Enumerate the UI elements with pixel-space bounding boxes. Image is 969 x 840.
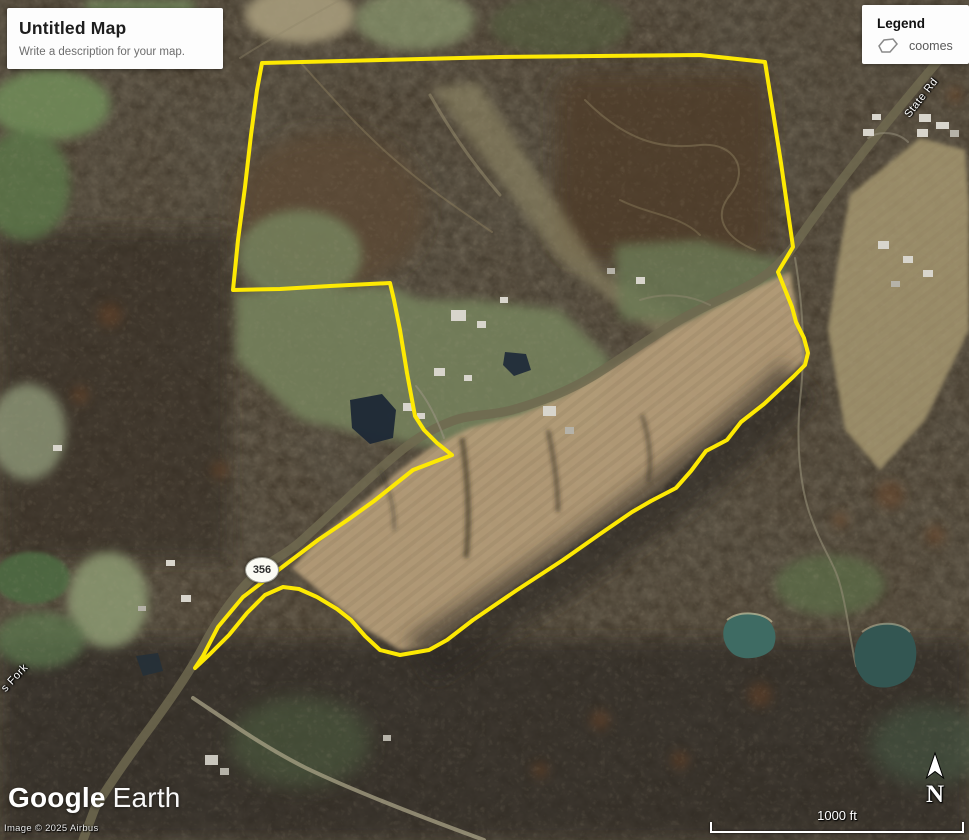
route-shield-356: 356: [245, 557, 279, 583]
earth-wordmark: Earth: [113, 782, 181, 813]
map-description: Write a description for your map.: [19, 46, 211, 58]
legend-item-coomes[interactable]: coomes: [877, 37, 969, 55]
terrain-patches: [0, 0, 969, 840]
imagery-copyright: Image © 2025 Airbus: [4, 823, 99, 834]
map-title: Untitled Map: [19, 18, 211, 39]
polygon-icon: [877, 37, 901, 55]
north-label: N: [919, 782, 951, 807]
google-wordmark: Google: [8, 782, 106, 813]
map-stage[interactable]: State Rd s Fork 356 Untitled Map Write a…: [0, 0, 969, 840]
compass: N: [919, 750, 951, 812]
map-title-box: Untitled Map Write a description for you…: [7, 8, 223, 69]
north-arrow-icon: [920, 750, 950, 780]
legend-box: Legend coomes: [862, 5, 969, 64]
satellite-canvas[interactable]: [0, 0, 969, 840]
legend-title: Legend: [877, 16, 969, 31]
scale-bar: [710, 822, 964, 833]
legend-item-label: coomes: [909, 39, 953, 53]
google-earth-logo: GoogleEarth: [8, 782, 181, 814]
